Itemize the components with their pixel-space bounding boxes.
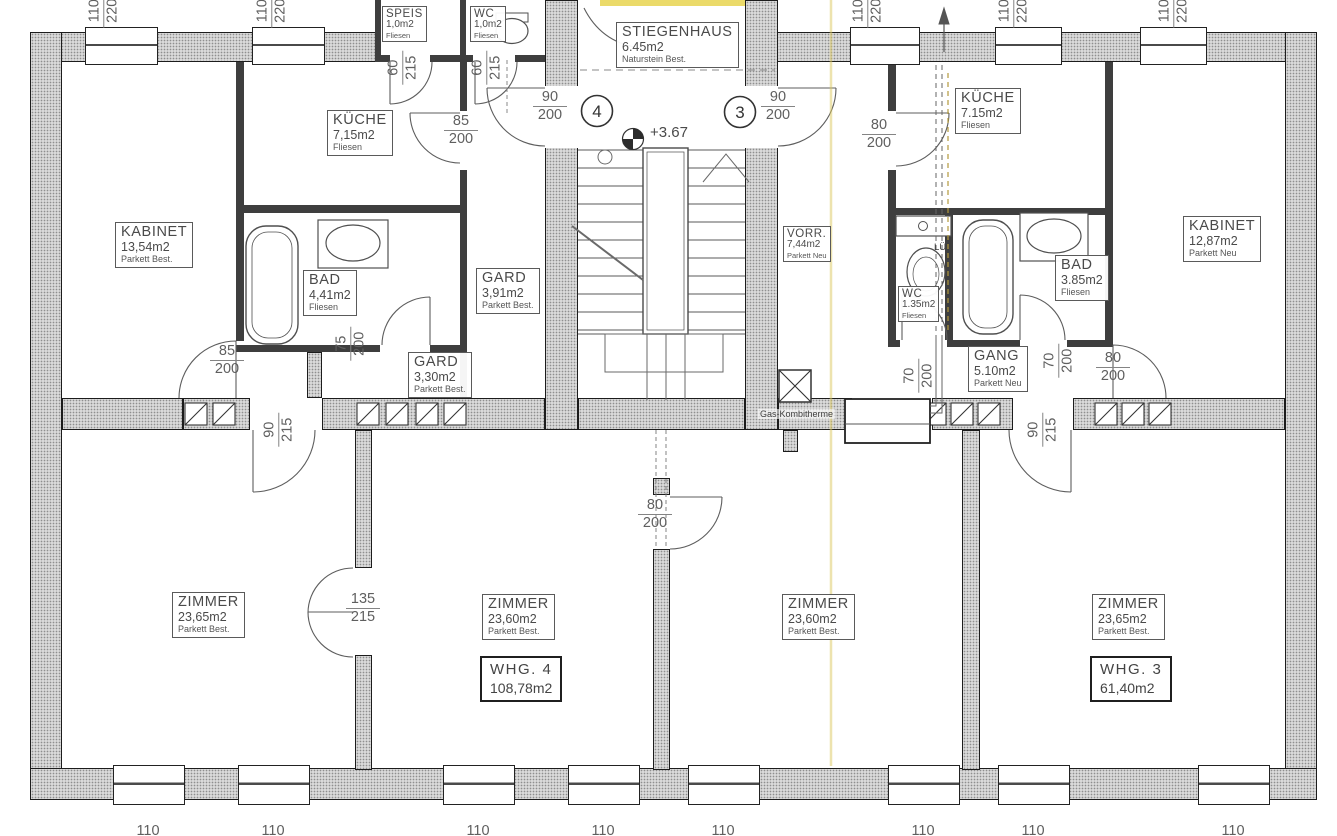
door-zimmer-mid: [670, 497, 722, 549]
dim-double-door: 135215: [346, 592, 380, 625]
mid-wall-f: [932, 398, 1013, 430]
dim-apt4-door: 90200: [533, 90, 567, 123]
wall-bottom: [30, 768, 1317, 800]
sink: [1020, 213, 1088, 261]
sink: [318, 220, 388, 268]
stair-treads: [578, 150, 745, 334]
vorr-kueche-wall: [888, 62, 896, 342]
room-label-vorr: VORR. 7,44m2 Parkett Neu: [783, 226, 831, 262]
dim-bad-left-door: 75200: [326, 316, 376, 372]
bathtub: [246, 226, 298, 344]
room-label-zimmer-s3: ZIMMER 23,60m2 Parkett Best.: [782, 594, 855, 640]
mid-wall-c: [322, 398, 545, 430]
room-label-bad-left: BAD 4,41m2 Fliesen: [303, 270, 357, 316]
stairwell-wall-left: [545, 0, 578, 430]
stairwell-wall-right: [745, 0, 778, 430]
unit-label-whg3: WHG. 3 61,40m2: [1090, 656, 1172, 702]
mid-wall-a: [62, 398, 183, 430]
window: [443, 765, 515, 805]
dim-window-bottom: 110220: [906, 824, 940, 836]
window: [688, 765, 760, 805]
dim-window-bottom: 110220: [256, 824, 290, 836]
room-label-speis: SPEIS 1,0m2 Fliesen: [382, 6, 427, 42]
window: [1198, 765, 1270, 805]
room-label-gard-b: GARD 3,30m2 Parkett Best.: [408, 352, 472, 398]
dim-window-top: 110220: [1150, 0, 1198, 40]
kabinet-right-west-wall: [1105, 62, 1113, 347]
bathtub: [963, 220, 1013, 334]
gard-b-side-wall: [307, 352, 322, 398]
room-label-wc-left: WC 1,0m2 Fliesen: [470, 6, 506, 42]
window: [113, 765, 185, 805]
level-marker-icon: [623, 129, 644, 150]
zimmer1-2-wall-lower: [355, 655, 372, 770]
stair-direction: [572, 150, 749, 280]
dim-zimmer-mid-door: 80200: [638, 498, 672, 531]
door-tag-4: 4: [582, 96, 613, 127]
zimmer3-4-wall: [962, 430, 980, 770]
mid-wall-b: [183, 398, 250, 430]
highlight-strip: [600, 0, 745, 6]
vent-label: LÜ: [934, 242, 946, 253]
room-label-stiegenhaus: STIEGENHAUS 6.45m2 Naturstein Best.: [616, 22, 739, 68]
wall-right: [1285, 32, 1317, 800]
kueche-right-south-wall: [888, 208, 1113, 215]
counter: [896, 216, 951, 236]
window: [568, 765, 640, 805]
dim-window-bottom: 110220: [131, 824, 165, 836]
gas-boiler-label: Gas-Kombitherme: [758, 409, 835, 419]
floor-plan: 4 3 SPEIS 1,0m2 Fliesen WC 1,0m2 Fliesen…: [0, 0, 1337, 836]
room-label-bad-right: BAD 3.85m2 Fliesen: [1055, 255, 1109, 301]
dim-window-top: 110220: [80, 0, 128, 40]
room-label-gang: GANG 5.10m2 Parkett Neu: [968, 346, 1028, 392]
dim-apt3-door: 90200: [761, 90, 795, 123]
kueche-bad-divider: [236, 205, 467, 213]
dim-zimmer-se-door: 90215: [1018, 402, 1068, 458]
unit-label-whg4: WHG. 4 108,78m2: [480, 656, 562, 702]
dim-window-bottom: 110220: [706, 824, 740, 836]
room-label-zimmer-sw: ZIMMER 23,65m2 Parkett Best.: [172, 592, 245, 638]
room-label-zimmer-s2: ZIMMER 23,60m2 Parkett Best.: [482, 594, 555, 640]
window: [238, 765, 310, 805]
door-opening-wc-right: [900, 340, 947, 347]
dim-window-bottom: 110220: [586, 824, 620, 836]
mid-wall-g: [1073, 398, 1285, 430]
dim-zimmer-sw-door: 90215: [254, 402, 304, 458]
level-marker-value: +3.67: [650, 124, 688, 141]
svg-text:3: 3: [735, 103, 744, 122]
dim-window-top: 110220: [844, 0, 892, 40]
stair-vestibule: [605, 334, 723, 400]
wall-left: [30, 32, 62, 800]
room-label-kabinet-left: KABINET 13,54m2 Parkett Best.: [115, 222, 193, 268]
dim-window-bottom: 110220: [1016, 824, 1050, 836]
dim-kueche-right-door: 80200: [862, 118, 896, 151]
dim-kabinet-right-door: 80200: [1096, 351, 1130, 384]
chimney-stub: [783, 430, 798, 452]
window: [888, 765, 960, 805]
kabinet-left-east-wall: [236, 62, 244, 341]
dim-kueche-left-door: 85200: [444, 114, 478, 147]
door-kueche-right: [896, 113, 949, 166]
room-label-gard-a: GARD 3,91m2 Parkett Best.: [476, 268, 540, 314]
room-label-wc-right: WC 1.35m2 Fliesen: [898, 286, 939, 322]
window: [998, 765, 1070, 805]
room-label-kueche-right: KÜCHE 7.15m2 Fliesen: [955, 88, 1021, 134]
svg-text:4: 4: [592, 102, 601, 121]
dim-window-top: 110220: [990, 0, 1038, 40]
zimmer1-2-wall-upper: [355, 430, 372, 568]
dim-kabinet-left-door: 85200: [210, 344, 244, 377]
stair-well: [643, 148, 688, 334]
dim-wc-left-door: 60215: [462, 42, 512, 94]
zimmer2-3-wall: [653, 549, 670, 770]
dim-window-bottom: 110220: [461, 824, 495, 836]
dim-gang-door: 70200: [1034, 333, 1084, 389]
zimmer2-3-wall-stub: [653, 478, 670, 495]
door-opening-bad-left: [380, 345, 430, 352]
dim-window-top: 110220: [248, 0, 296, 40]
dim-window-bottom: 110220: [1216, 824, 1250, 836]
mid-wall-d: [578, 398, 745, 430]
room-label-kabinet-right: KABINET 12,87m2 Parkett Neu: [1183, 216, 1261, 262]
room-label-kueche-left: KÜCHE 7,15m2 Fliesen: [327, 110, 393, 156]
door-bad-left: [382, 297, 430, 345]
dim-speis-door: 60215: [378, 42, 428, 94]
room-label-zimmer-se: ZIMMER 23,65m2 Parkett Best.: [1092, 594, 1165, 640]
wc-right-east-wall: [945, 215, 953, 342]
dim-wc-right-door: 70200: [894, 348, 944, 404]
